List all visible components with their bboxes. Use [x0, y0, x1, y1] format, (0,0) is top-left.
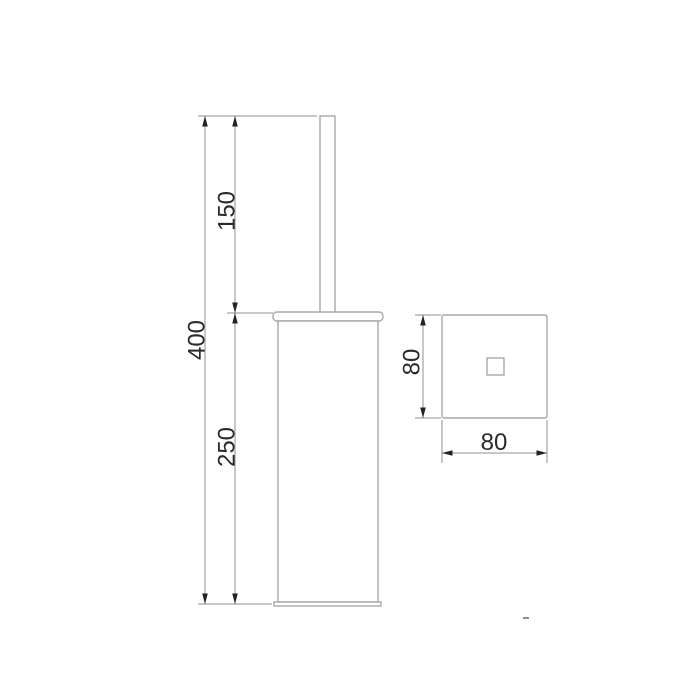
arrow-left-width [442, 450, 453, 456]
dim-label-total-height: 400 [183, 320, 210, 360]
holder-base [274, 602, 381, 606]
arrow-down-depth [420, 408, 426, 419]
front-view [273, 116, 383, 606]
arrow-right-width [537, 450, 548, 456]
dim-label-depth: 80 [398, 349, 425, 376]
drawing-svg: 400 150 250 80 [0, 0, 700, 700]
top-view [442, 315, 547, 418]
handle-cross-section [487, 358, 504, 375]
holder-lid [273, 312, 383, 321]
dim-label-handle-height: 150 [213, 191, 240, 231]
brush-handle-rod [320, 116, 335, 313]
arrow-down-150 [232, 303, 238, 314]
holder-body [278, 321, 378, 602]
arrow-down-250 [232, 594, 238, 605]
dim-label-body-height: 250 [213, 427, 240, 467]
technical-drawing: 400 150 250 80 [0, 0, 700, 700]
arrow-up-250 [232, 313, 238, 324]
arrow-down-400 [202, 594, 208, 605]
arrow-up-depth [420, 315, 426, 326]
dim-label-width: 80 [481, 429, 508, 456]
stray-mark [523, 617, 529, 619]
arrow-up-400 [202, 116, 208, 127]
arrow-up-150 [232, 116, 238, 127]
